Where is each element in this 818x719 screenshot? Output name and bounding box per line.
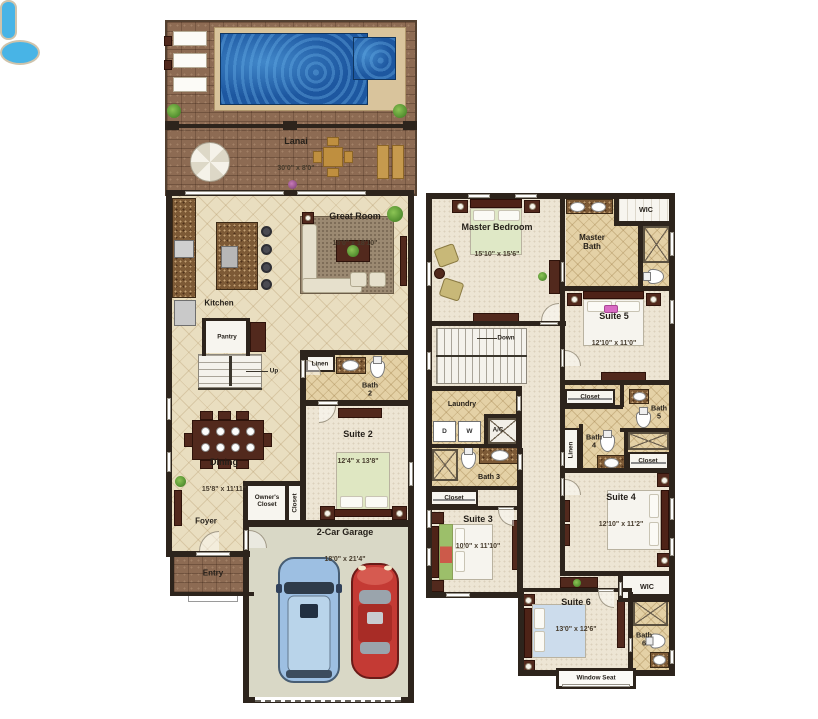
- bath3-shower: [432, 449, 458, 481]
- patio-chair: [327, 168, 339, 177]
- ac-closet-wall: [484, 414, 488, 446]
- patio-table: [323, 147, 343, 167]
- suite4-door: [561, 478, 564, 496]
- suite5-closet-label: Closet: [580, 393, 599, 400]
- owners-closet-label: Owner's Closet: [255, 494, 280, 508]
- garage-entry-door: [244, 530, 248, 550]
- spa: [353, 37, 396, 80]
- suite6-door: [598, 589, 614, 592]
- linen2-label: Linen: [567, 442, 574, 459]
- dining-chair: [200, 411, 213, 420]
- master-bath-bottom-wall: [560, 286, 675, 291]
- lamp: [661, 477, 668, 484]
- place-setting: [231, 427, 240, 436]
- garage-label: 2-Car Garage 18'0" x 21'4": [317, 509, 374, 583]
- bath4-sink: [604, 458, 619, 468]
- bath5-label: Bath 5: [651, 405, 667, 422]
- bath3-top-wall: [426, 444, 522, 448]
- bath3-sink: [491, 450, 509, 461]
- suite2-pillow: [365, 496, 388, 508]
- dining-chair: [263, 433, 272, 447]
- side-table: [164, 60, 172, 70]
- pantry-right-wall: [246, 318, 250, 356]
- dining-chair: [184, 433, 193, 447]
- bath2-door: [301, 360, 305, 378]
- window: [167, 452, 171, 472]
- laundry-door: [517, 396, 521, 411]
- window-seat-label: Window Seat: [576, 674, 615, 681]
- suite3-headboard: [431, 526, 439, 578]
- media-cabinet: [549, 260, 560, 294]
- window: [515, 194, 537, 198]
- bath3-bottom-wall: [426, 486, 522, 490]
- window: [167, 398, 171, 420]
- bath3-door: [518, 454, 522, 470]
- suite5-left-wall: [560, 291, 565, 385]
- bath2-sink: [342, 360, 359, 371]
- wic2-bottom-wall: [618, 598, 675, 602]
- refrigerator: [174, 300, 196, 326]
- window: [670, 498, 674, 520]
- suite2-pillow: [340, 496, 363, 508]
- suite3-label: Suite 3 10'0" x 11'10": [456, 496, 501, 570]
- bath2-top-wall: [300, 350, 408, 355]
- suite4-label: Suite 4 12'10" x 11'2": [599, 474, 644, 548]
- bath6-door: [629, 638, 632, 652]
- suite4-pillow: [649, 494, 659, 518]
- lanai-label: Lanai 30'0" x 8'0": [277, 118, 314, 192]
- bath6-label: Bath 6: [636, 632, 652, 649]
- window: [468, 194, 490, 198]
- suite4-headboard: [661, 490, 669, 550]
- swimming-pool: [220, 33, 368, 105]
- side-table: [164, 36, 172, 46]
- wic2-door: [619, 582, 622, 596]
- f2-wall-left: [426, 193, 432, 598]
- bar-stool: [261, 279, 272, 290]
- window: [409, 462, 413, 486]
- pantry-top-wall: [202, 318, 250, 321]
- down-label: Down: [497, 334, 514, 341]
- ottoman: [350, 272, 367, 287]
- laundry-label: Laundry: [448, 400, 476, 408]
- front-door-opening: [196, 552, 230, 556]
- bath6-top-wall: [628, 594, 675, 598]
- window: [670, 232, 674, 256]
- island-sink: [221, 246, 238, 268]
- pantry-left-wall: [202, 318, 206, 356]
- pantry-label: Pantry: [217, 333, 237, 340]
- bath3-label: Bath 3: [478, 473, 500, 481]
- washer: W: [458, 421, 481, 442]
- window: [427, 352, 431, 370]
- entry-bottom-wall: [170, 592, 254, 596]
- window-seat-glass: [562, 684, 630, 687]
- bath4-right-wall: [624, 428, 628, 472]
- place-setting: [246, 443, 255, 452]
- bath-closet-label: Closet: [638, 457, 657, 464]
- bar-stool: [261, 262, 272, 273]
- stair-rail: [436, 355, 527, 357]
- floor-plan-canvas: Lanai 30'0" x 8'0" Kitchen: [0, 0, 818, 719]
- linen-label: Linen: [312, 360, 329, 367]
- closet-label: Closet: [291, 493, 298, 512]
- window: [670, 650, 674, 664]
- master-bedroom-label: Master Bedroom 15'10" x 15'6": [461, 204, 532, 278]
- media-console: [400, 236, 407, 286]
- lamp: [661, 557, 668, 564]
- master-sink: [570, 202, 585, 212]
- lamp: [396, 510, 403, 517]
- lanai-dims: 30'0" x 8'0": [277, 165, 314, 173]
- suite6-label: Suite 6 13'0" x 12'6": [555, 579, 596, 653]
- suite4-pillow: [649, 522, 659, 546]
- suite6-dresser: [617, 600, 625, 648]
- linen-bath4-wall: [579, 424, 583, 472]
- foyer-console: [174, 490, 182, 526]
- bath4-label: Bath 4: [586, 434, 602, 451]
- lamp: [525, 663, 532, 670]
- suite5-bottom-wall: [560, 380, 675, 385]
- f2-wall-right: [669, 193, 675, 676]
- window: [446, 593, 470, 597]
- patio-chair: [327, 137, 339, 146]
- window: [427, 548, 431, 566]
- suite4-top-wall: [560, 468, 675, 473]
- sectional-sofa: [302, 224, 317, 284]
- lounge-chair: [173, 31, 207, 46]
- hall-wall: [300, 350, 306, 406]
- closet-divider: [285, 481, 289, 524]
- suite2-label: Suite 2 12'4" x 13'8": [337, 411, 378, 485]
- dining-label: Dining 15'8" x 11'11": [202, 439, 246, 513]
- master-bath-label: Master Bath: [579, 233, 605, 251]
- suite6-left-wall: [518, 592, 524, 676]
- wic-bottom-wall: [614, 221, 674, 226]
- lamp: [525, 597, 532, 604]
- patio-umbrella: [190, 142, 230, 182]
- suite5-door: [561, 349, 564, 367]
- suite6-right-wall: [628, 592, 633, 676]
- ac-closet-wall: [484, 414, 520, 418]
- dining-chair: [218, 411, 231, 420]
- bath5-bottom-wall: [620, 428, 674, 432]
- bar-stool: [261, 244, 272, 255]
- window: [670, 300, 674, 324]
- deck-post: [165, 121, 179, 130]
- lamp: [650, 296, 657, 303]
- wic2-label: WIC: [640, 583, 654, 591]
- suite2-left-wall: [300, 406, 306, 520]
- round-table: [434, 268, 445, 279]
- kitchen-label: Kitchen: [204, 298, 233, 307]
- bath2-label: Bath 2: [362, 382, 378, 399]
- stair-rail: [198, 388, 262, 390]
- ac-label: A/C: [493, 426, 504, 433]
- deck-lounger: [392, 145, 404, 179]
- window: [427, 510, 431, 528]
- entry-left-wall: [170, 557, 174, 594]
- suite3-bottom-wall: [426, 592, 524, 598]
- suite3-door: [498, 507, 514, 510]
- suite6-pillow: [534, 608, 545, 629]
- shower-col-wall: [638, 222, 643, 287]
- window: [670, 538, 674, 556]
- bath2-tub: [0, 0, 17, 40]
- suite6-pillow: [534, 631, 545, 652]
- up-arrow: [246, 371, 268, 372]
- master-tub: [0, 40, 40, 65]
- bush: [167, 104, 181, 118]
- f2-wall-top: [426, 193, 675, 199]
- lamp: [571, 296, 578, 303]
- lounge-chair: [173, 53, 207, 68]
- closet-top-wall: [243, 481, 304, 486]
- foyer-plant: [175, 476, 186, 487]
- linen-door: [561, 452, 564, 466]
- great-room-label: Great Room 18'0" x 18'10": [329, 193, 381, 267]
- wall-left: [166, 190, 172, 557]
- corner-plant: [387, 206, 403, 222]
- bath5-left-wall: [620, 385, 624, 407]
- suite2-door: [318, 401, 338, 405]
- wic-master-label: WIC: [639, 206, 653, 214]
- master-bath-door: [561, 262, 564, 282]
- entry-label: Entry: [203, 568, 223, 577]
- plant: [538, 272, 547, 281]
- stair-rail: [229, 356, 232, 386]
- bath5-sink: [633, 392, 646, 401]
- bush: [393, 104, 407, 118]
- deck-post: [403, 121, 417, 130]
- lamp: [305, 215, 311, 221]
- place-setting: [216, 427, 225, 436]
- laundry-top-wall: [426, 386, 522, 391]
- drop-zone-cabinet: [250, 322, 266, 352]
- bath5-shower: [628, 432, 669, 450]
- dining-chair: [236, 411, 249, 420]
- bath6-shower: [633, 600, 668, 626]
- place-setting: [246, 427, 255, 436]
- master-door: [540, 322, 558, 325]
- dryer: D: [433, 421, 456, 442]
- garage-door-dashed: [255, 697, 401, 702]
- suite3-quilt: [439, 524, 453, 580]
- master-sink: [591, 202, 606, 212]
- ottoman: [369, 272, 386, 287]
- stove: [174, 240, 194, 258]
- slider-door: [185, 191, 284, 195]
- wall-right: [408, 190, 414, 703]
- master-shower: [643, 226, 670, 263]
- lounge-chair: [173, 77, 207, 92]
- bar-stool: [261, 226, 272, 237]
- closet5-bottom-wall: [565, 405, 623, 409]
- up-label: Up: [270, 367, 278, 374]
- lanai-name: Lanai: [277, 137, 314, 147]
- deck-lounger: [377, 145, 389, 179]
- place-setting: [201, 427, 210, 436]
- patio-chair: [344, 151, 353, 163]
- suite5-label: Suite 5 12'10" x 11'0": [592, 293, 637, 367]
- bath6-sink: [653, 655, 666, 665]
- down-arrow: [477, 338, 497, 339]
- foyer-label: Foyer: [195, 516, 217, 525]
- suite6-headboard: [524, 608, 532, 658]
- window: [427, 262, 431, 286]
